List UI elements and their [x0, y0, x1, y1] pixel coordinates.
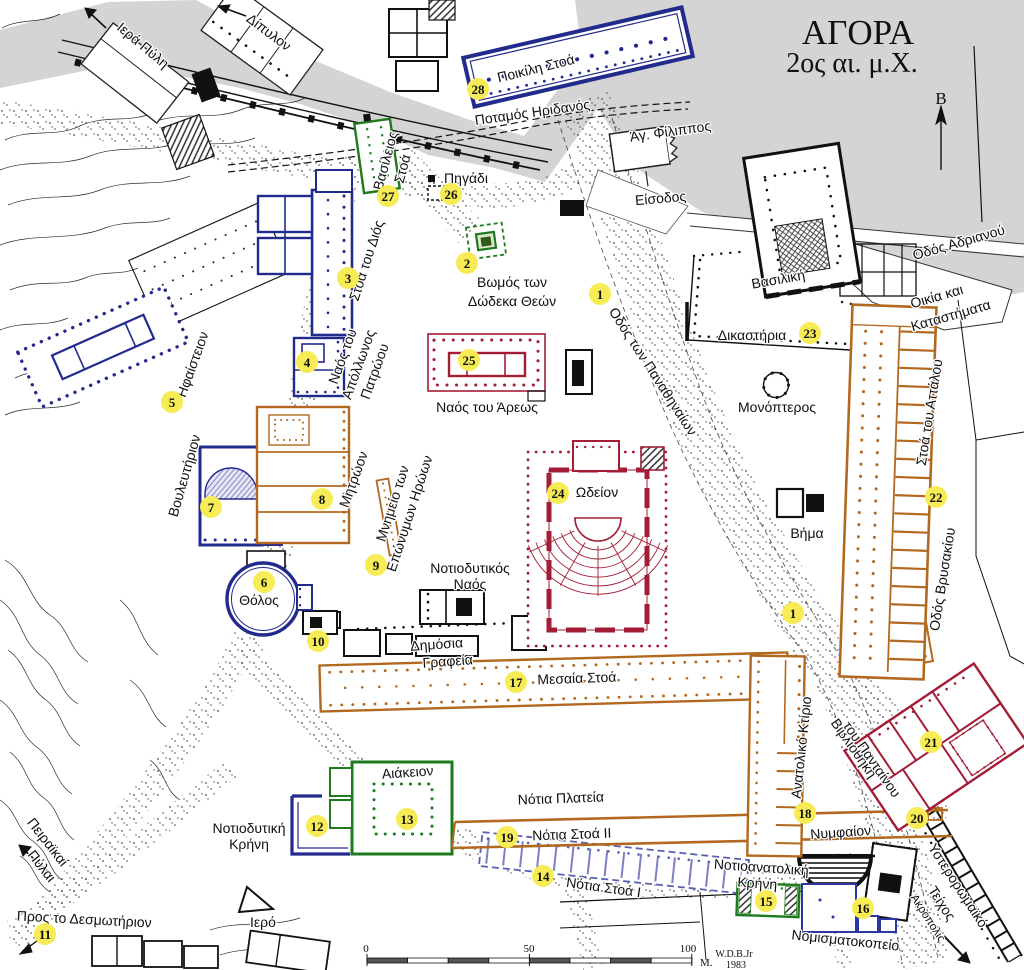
svg-text:27: 27	[382, 189, 396, 204]
label-notioanatoliki-2: Κρήνη	[737, 874, 778, 893]
svg-text:28: 28	[472, 82, 486, 97]
label-odeion: Ωδείον	[576, 484, 618, 500]
marker-8: 8	[311, 488, 333, 510]
bema-structure	[777, 489, 824, 517]
marker-16: 16	[852, 897, 874, 919]
svg-text:14: 14	[537, 869, 551, 884]
marker-17: 17	[505, 671, 527, 693]
svg-text:9: 9	[373, 558, 380, 573]
svg-text:1: 1	[790, 606, 797, 621]
metroon-building	[257, 407, 349, 543]
svg-text:23: 23	[804, 326, 818, 341]
credit-year: 1983	[726, 960, 746, 970]
svg-text:11: 11	[39, 927, 51, 942]
marker-12: 12	[306, 815, 328, 837]
map-title: ΑΓΟΡΑ	[802, 13, 915, 52]
svg-text:22: 22	[930, 490, 943, 505]
marker-4: 4	[296, 351, 318, 373]
marker-2: 2	[456, 252, 478, 274]
scale-100: 100	[680, 943, 697, 955]
hephaisteion-temple	[18, 287, 189, 407]
marker-1a: 1	[589, 283, 611, 305]
svg-text:12: 12	[311, 819, 324, 834]
ares-altar	[566, 350, 592, 394]
marker-19: 19	[496, 826, 518, 848]
label-naos-areos: Ναός του Άρεως	[436, 399, 538, 415]
svg-text:6: 6	[261, 575, 268, 590]
marker-7: 7	[200, 496, 222, 518]
scale-unit: M.	[700, 957, 713, 969]
marker-22: 22	[925, 486, 947, 508]
label-notiodytiki-1: Νοτιοδυτική	[212, 820, 285, 836]
marker-25: 25	[458, 349, 480, 371]
svg-text:2: 2	[464, 256, 471, 271]
label-tholos: Θόλος	[239, 592, 279, 608]
marker-21: 21	[920, 731, 942, 753]
label-vomos-2: Δώδεκα Θεών	[468, 293, 556, 309]
marker-5: 5	[161, 391, 183, 413]
top-building-b	[396, 61, 438, 91]
svg-text:18: 18	[799, 806, 813, 821]
svg-text:7: 7	[208, 500, 215, 515]
label-odos-vrysakiou: Οδός Βρυσακίου	[926, 526, 958, 632]
wall-tower-hatched	[162, 114, 215, 169]
marker-26: 26	[440, 183, 462, 205]
odeion-building	[528, 441, 668, 646]
iero-triangle	[239, 887, 273, 912]
marker-11: 11	[34, 923, 56, 945]
label-mesaia-stoa: Μεσαία Στοά	[537, 669, 616, 688]
svg-text:8: 8	[319, 492, 326, 507]
marker-1b: 1	[782, 602, 804, 624]
svg-text:17: 17	[510, 675, 524, 690]
black-block	[560, 200, 584, 216]
branch-road-a	[575, 888, 593, 968]
credit-author: W.D.B.Jr	[715, 949, 753, 960]
marker-10: 10	[307, 630, 329, 652]
label-notiodytikos-1: Νοτιοδυτικός	[430, 560, 510, 576]
svg-text:26: 26	[445, 187, 459, 202]
sw-houses	[92, 931, 330, 970]
marker-18: 18	[794, 802, 816, 824]
label-vomos-1: Βωμός των	[477, 274, 547, 290]
label-vouleuterion: Βουλευτήριον	[165, 433, 204, 519]
marker-23: 23	[799, 322, 821, 344]
temple-of-ares	[428, 334, 545, 401]
marker-15: 15	[755, 890, 777, 912]
west-road	[18, 158, 352, 945]
label-monopteros: Μονόπτερος	[738, 399, 816, 415]
marker-6: 6	[253, 571, 275, 593]
map-svg: 0 50 100 M. W.D.B.Jr 1983 ΑΓΟΡΑ 2ος αι. …	[0, 0, 1024, 970]
svg-text:15: 15	[760, 894, 774, 909]
marker-27: 27	[377, 185, 399, 207]
marker-3: 3	[337, 267, 359, 289]
north-label: B	[935, 89, 946, 108]
svg-text:3: 3	[345, 271, 352, 286]
marker-20: 20	[906, 807, 928, 829]
svg-text:10: 10	[312, 634, 325, 649]
label-vima: Βήμα	[790, 525, 823, 541]
svg-text:21: 21	[925, 735, 938, 750]
svg-text:1: 1	[597, 287, 604, 302]
svg-text:16: 16	[857, 901, 871, 916]
marker-9: 9	[365, 554, 387, 576]
svg-text:24: 24	[552, 486, 566, 501]
marker-13: 13	[396, 808, 418, 830]
label-notia-plateia: Νότια Πλατεία	[517, 789, 604, 808]
label-notiodytiki-2: Κρήνη	[229, 836, 269, 852]
scale-bar: 0 50 100 M. W.D.B.Jr 1983	[363, 943, 753, 970]
scale-50: 50	[524, 943, 536, 955]
sw-temple	[420, 590, 484, 624]
agora-map: 0 50 100 M. W.D.B.Jr 1983 ΑΓΟΡΑ 2ος αι. …	[0, 0, 1024, 970]
svg-text:5: 5	[169, 395, 176, 410]
svg-text:4: 4	[304, 355, 311, 370]
label-notiodytikos-2: Ναός	[454, 576, 487, 592]
svg-text:13: 13	[401, 812, 415, 827]
monopteros-building	[764, 373, 789, 398]
top-building-hatched	[429, 0, 455, 20]
scale-0: 0	[363, 943, 369, 955]
label-dikastiria: Δικαστήρια	[718, 327, 787, 343]
stoa-of-attalos	[840, 305, 937, 680]
marker-24: 24	[547, 482, 569, 504]
map-subtitle: 2ος αι. μ.Χ.	[786, 48, 918, 79]
svg-text:19: 19	[501, 830, 515, 845]
svg-text:20: 20	[911, 811, 924, 826]
label-notia-stoa2: Νότια Στοά II	[532, 825, 612, 844]
label-iero: Ιερό	[250, 914, 276, 930]
marker-28: 28	[467, 78, 489, 100]
marker-14: 14	[532, 865, 554, 887]
svg-text:25: 25	[463, 353, 477, 368]
